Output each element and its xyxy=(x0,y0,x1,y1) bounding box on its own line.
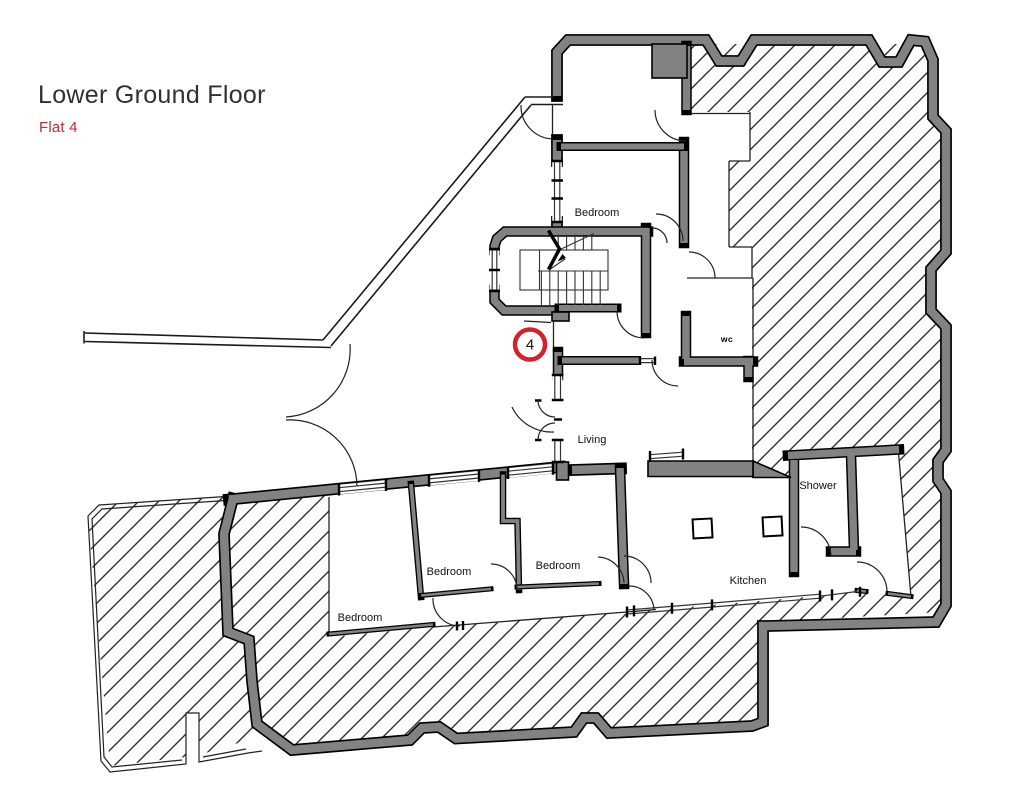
svg-text:4: 4 xyxy=(526,337,534,354)
svg-text:Lower Ground Floor: Lower Ground Floor xyxy=(38,81,266,109)
svg-text:Kitchen: Kitchen xyxy=(730,575,767,587)
svg-text:Shower: Shower xyxy=(799,480,837,492)
svg-text:Bedroom: Bedroom xyxy=(338,612,383,624)
svg-text:Bedroom: Bedroom xyxy=(575,207,620,219)
svg-text:Living: Living xyxy=(578,434,607,446)
svg-text:Bedroom: Bedroom xyxy=(536,560,581,572)
svg-text:Flat 4: Flat 4 xyxy=(39,119,78,136)
svg-text:wc: wc xyxy=(720,334,733,344)
svg-text:Bedroom: Bedroom xyxy=(427,566,472,578)
